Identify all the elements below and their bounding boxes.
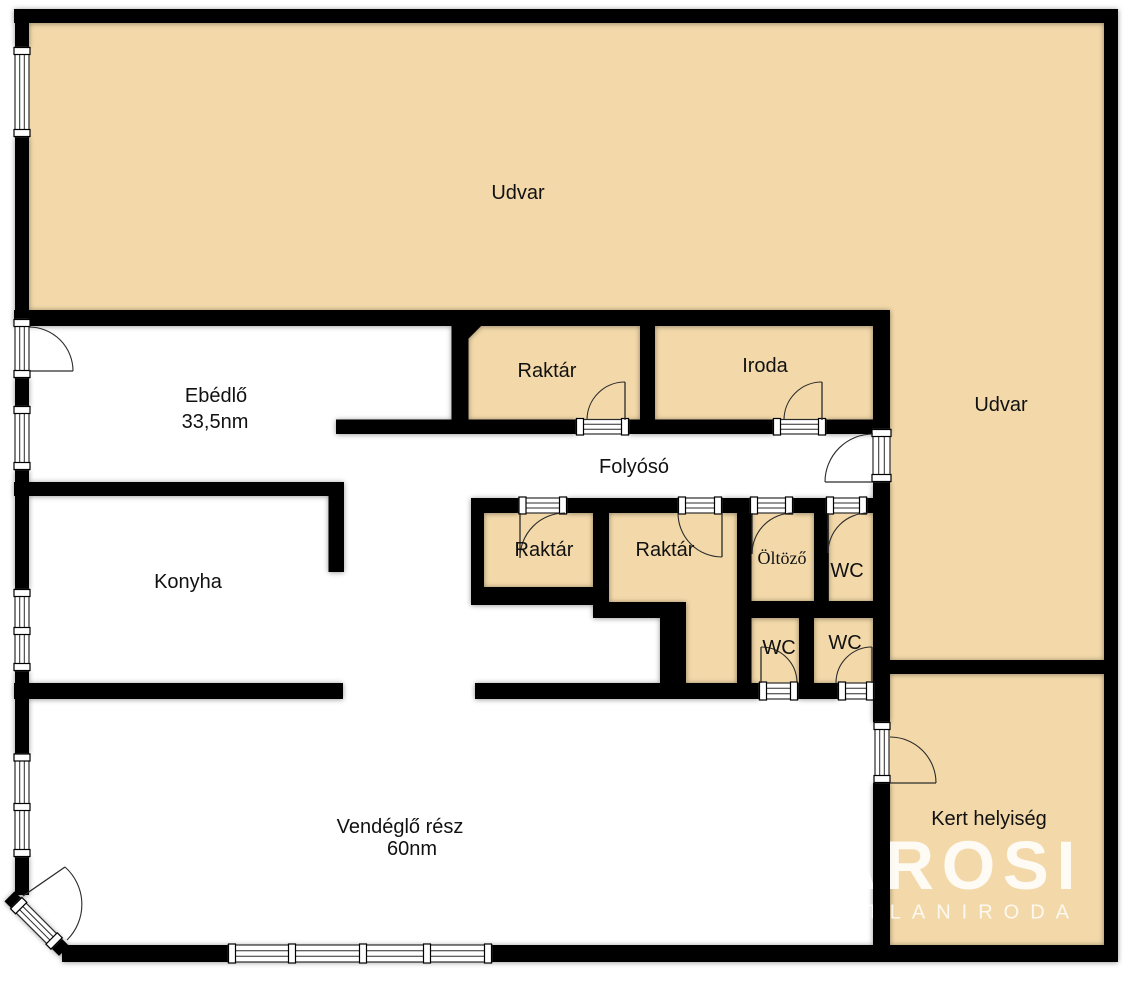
svg-text:Kert helyiség: Kert helyiség xyxy=(931,808,1047,830)
svg-text:Iroda: Iroda xyxy=(742,355,788,377)
svg-text:Udvar: Udvar xyxy=(974,394,1028,416)
svg-text:Udvar: Udvar xyxy=(491,182,545,204)
svg-text:33,5nm: 33,5nm xyxy=(182,411,249,433)
svg-text:Raktár: Raktár xyxy=(636,539,695,561)
svg-text:Ebédlő: Ebédlő xyxy=(185,385,247,407)
svg-text:Raktár: Raktár xyxy=(515,539,574,561)
svg-text:60nm: 60nm xyxy=(387,838,437,860)
svg-text:WC: WC xyxy=(762,637,795,659)
svg-text:INGATLANIRODA: INGATLANIRODA xyxy=(775,902,1080,924)
svg-text:Konyha: Konyha xyxy=(154,571,223,593)
svg-text:Raktár: Raktár xyxy=(518,360,577,382)
svg-text:WC: WC xyxy=(830,560,863,582)
svg-text:Öltöző: Öltöző xyxy=(758,548,807,568)
svg-text:VÁROSI: VÁROSI xyxy=(773,827,1083,904)
svg-text:Folyósó: Folyósó xyxy=(599,456,669,478)
svg-text:WC: WC xyxy=(828,632,861,654)
svg-text:Vendéglő rész: Vendéglő rész xyxy=(337,816,464,838)
